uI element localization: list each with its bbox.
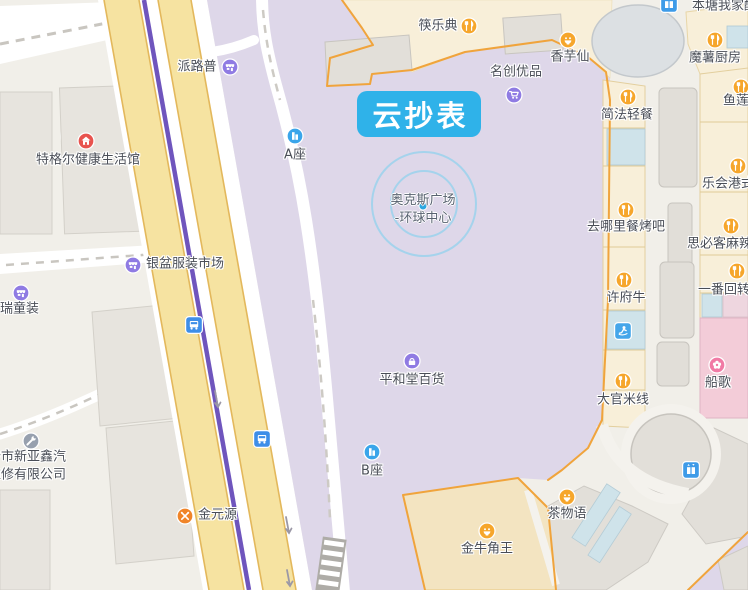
poi-daguanmixian-label: 大官米线 <box>597 393 649 408</box>
restaurant-icon <box>615 271 633 289</box>
poi-xiangyuxian-label: 香芋仙 <box>550 50 589 65</box>
poi-moshuchufang-label: 魔薯厨房 <box>689 51 741 66</box>
poi-pinghetangbaihuo-label: 平和堂百货 <box>379 373 444 388</box>
restaurant-icon <box>614 372 632 390</box>
cart-icon <box>505 86 523 104</box>
restaurant-icon <box>619 88 637 106</box>
poi-kuailedian-label: 筷乐典 <box>418 19 457 34</box>
house-icon <box>77 132 95 150</box>
poi-qichexiuli-label: 沙市新亚鑫汽 <box>0 450 66 465</box>
poi-yifanhuizhuan-label: 一番回转 <box>698 283 748 298</box>
bus-icon <box>253 430 271 448</box>
poi-pailupu-label: 派路普 <box>177 60 216 75</box>
elevator-icon <box>682 461 700 479</box>
restaurant-icon <box>460 17 478 35</box>
building-icon <box>286 127 304 145</box>
poi-chuange-label: 船歌 <box>705 376 731 391</box>
plaza-poi-label[interactable]: 奥克斯广场 -环球中心 <box>390 192 455 228</box>
dessert-icon <box>559 31 577 49</box>
restaurant-icon <box>729 157 747 175</box>
person-icon <box>614 322 632 340</box>
plaza-poi-line2: -环球中心 <box>390 210 455 228</box>
wrench-icon <box>22 432 40 450</box>
market-icon <box>124 256 142 274</box>
plaza-poi-line1: 奥克斯广场 <box>390 192 455 210</box>
restaurant-icon <box>728 262 746 280</box>
bag-icon <box>403 352 421 370</box>
poi-ruitongzhuang-label: 均瑞童装 <box>0 302 39 317</box>
restaurant-cross-icon <box>176 507 194 525</box>
selected-poi-bubble[interactable]: 云抄表 <box>357 91 481 137</box>
elevator-icon <box>660 0 678 13</box>
poi-lehuigangshi-label: 乐会港式 <box>702 177 748 192</box>
poi-qunalicankaoba-label: 去哪里餐烤吧 <box>587 220 665 235</box>
poi-qichexiuli-label2: 维修有限公司 <box>0 468 66 483</box>
restaurant-icon <box>617 201 635 219</box>
poi-layer: 筷乐典香芋仙名创优品魔薯厨房本塘我家酸鱼莲简法轻餐乐会港式去哪里餐烤吧思必客麻辣… <box>0 0 748 590</box>
building-icon <box>363 443 381 461</box>
poi-xufuniu-label: 许府牛 <box>606 291 645 306</box>
restaurant-icon <box>722 217 740 235</box>
poi-jinyuanyuan-label: 金元源 <box>198 508 237 523</box>
poi-b-zuo-label: B座 <box>361 464 383 479</box>
poi-bentangwojia-label: 本塘我家酸 <box>692 0 748 14</box>
map-viewport[interactable]: 筷乐典香芋仙名创优品魔薯厨房本塘我家酸鱼莲简法轻餐乐会港式去哪里餐烤吧思必客麻辣… <box>0 0 748 590</box>
poi-tegeer-label: 特格尔健康生活馆 <box>36 153 140 168</box>
bus-icon <box>185 316 203 334</box>
flower-icon <box>708 356 726 374</box>
poi-sibikemala-label: 思必客麻辣 <box>687 237 748 252</box>
poi-chawuyu-label: 茶物语 <box>547 507 586 522</box>
dessert-icon <box>558 488 576 506</box>
restaurant-icon <box>706 31 724 49</box>
poi-a-zuo-label: A座 <box>284 148 306 163</box>
poi-jinniujiaowang-label: 金牛角王 <box>461 542 513 557</box>
poi-yinpenfuzhuang-label: 银盆服装市场 <box>146 257 224 272</box>
poi-mingchuangyoupin-label: 名创优品 <box>490 65 542 80</box>
dessert-icon <box>478 522 496 540</box>
market-icon <box>12 284 30 302</box>
poi-yulian-label: 鱼莲 <box>723 94 748 109</box>
poi-jianfaqingcan-label: 简法轻餐 <box>601 108 653 123</box>
market-icon <box>221 58 239 76</box>
